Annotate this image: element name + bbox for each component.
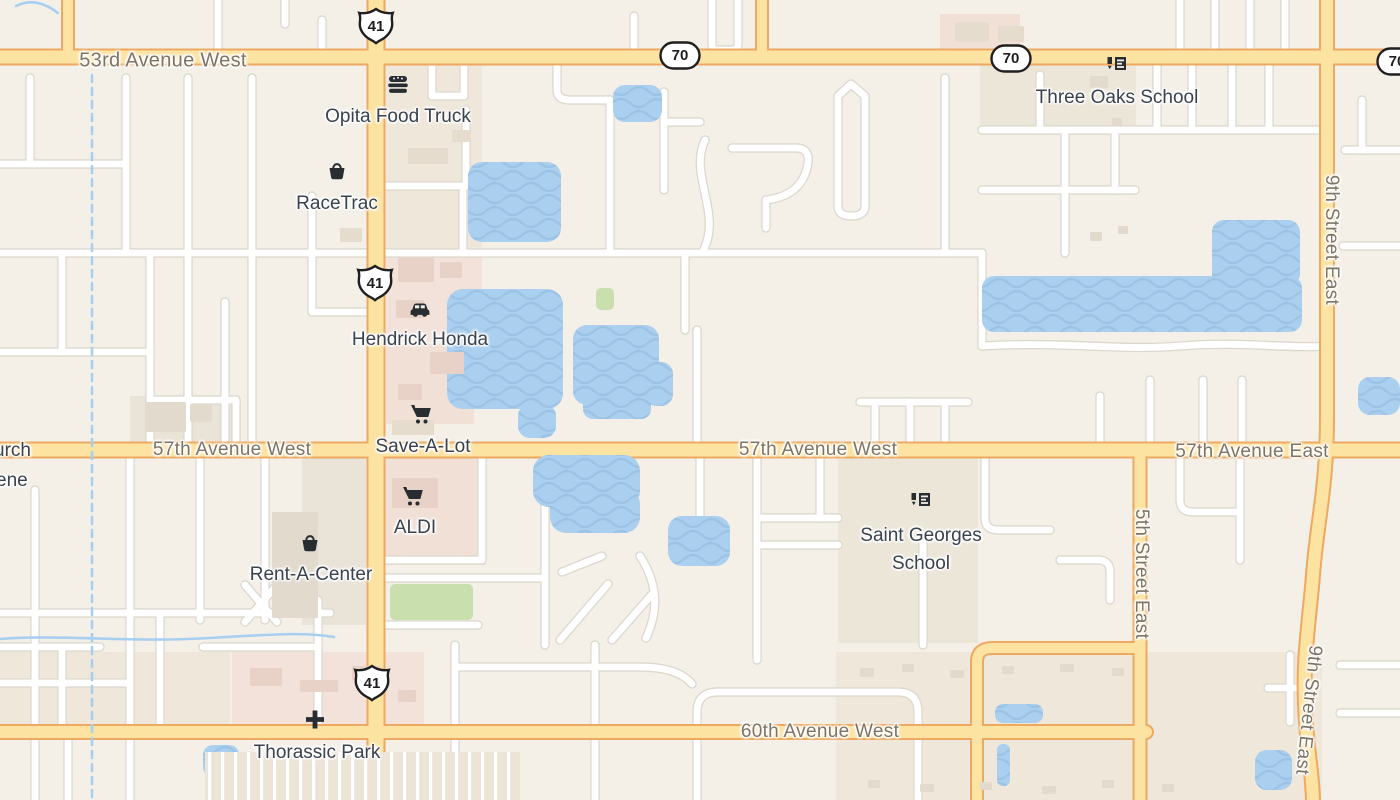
route-shield-us-41: 41 xyxy=(351,665,393,708)
svg-text:70: 70 xyxy=(1389,53,1400,70)
route-shield-sr-70: 70 xyxy=(1376,43,1400,86)
route-shield-sr-70: 70 xyxy=(659,37,701,80)
car-icon xyxy=(408,297,432,321)
poi-three-oaks-school[interactable] xyxy=(1105,54,1129,83)
route-shield-us-41: 41 xyxy=(354,265,396,308)
poi-rent-a-center[interactable] xyxy=(298,531,322,560)
poi-save-a-lot[interactable] xyxy=(409,403,433,432)
svg-text:70: 70 xyxy=(672,47,689,64)
school-icon xyxy=(909,490,933,514)
poi-saint-georges-school[interactable] xyxy=(909,490,933,519)
svg-text:41: 41 xyxy=(364,675,381,692)
map-svg xyxy=(0,0,1400,800)
cart-icon xyxy=(409,403,433,427)
poi-racetrac[interactable] xyxy=(325,159,349,188)
svg-text:70: 70 xyxy=(1003,50,1020,67)
route-shield-us-41: 41 xyxy=(355,8,397,51)
svg-text:41: 41 xyxy=(367,275,384,292)
school-icon xyxy=(1105,54,1129,78)
poi-hendrick-honda[interactable] xyxy=(408,297,432,326)
route-shield-sr-70: 70 xyxy=(990,40,1032,83)
poi-aldi[interactable] xyxy=(401,485,425,514)
basket-icon xyxy=(325,159,349,183)
burger-icon xyxy=(386,73,410,97)
cart-icon xyxy=(401,485,425,509)
poi-thorassic-park[interactable] xyxy=(303,708,327,737)
map-canvas[interactable]: 53rd Avenue West57th Avenue West57th Ave… xyxy=(0,0,1400,800)
svg-text:41: 41 xyxy=(368,18,385,35)
cross-icon xyxy=(303,708,327,732)
map-base-layer xyxy=(0,0,1400,800)
basket-icon xyxy=(298,531,322,555)
poi-opita-food-truck[interactable] xyxy=(386,73,410,102)
